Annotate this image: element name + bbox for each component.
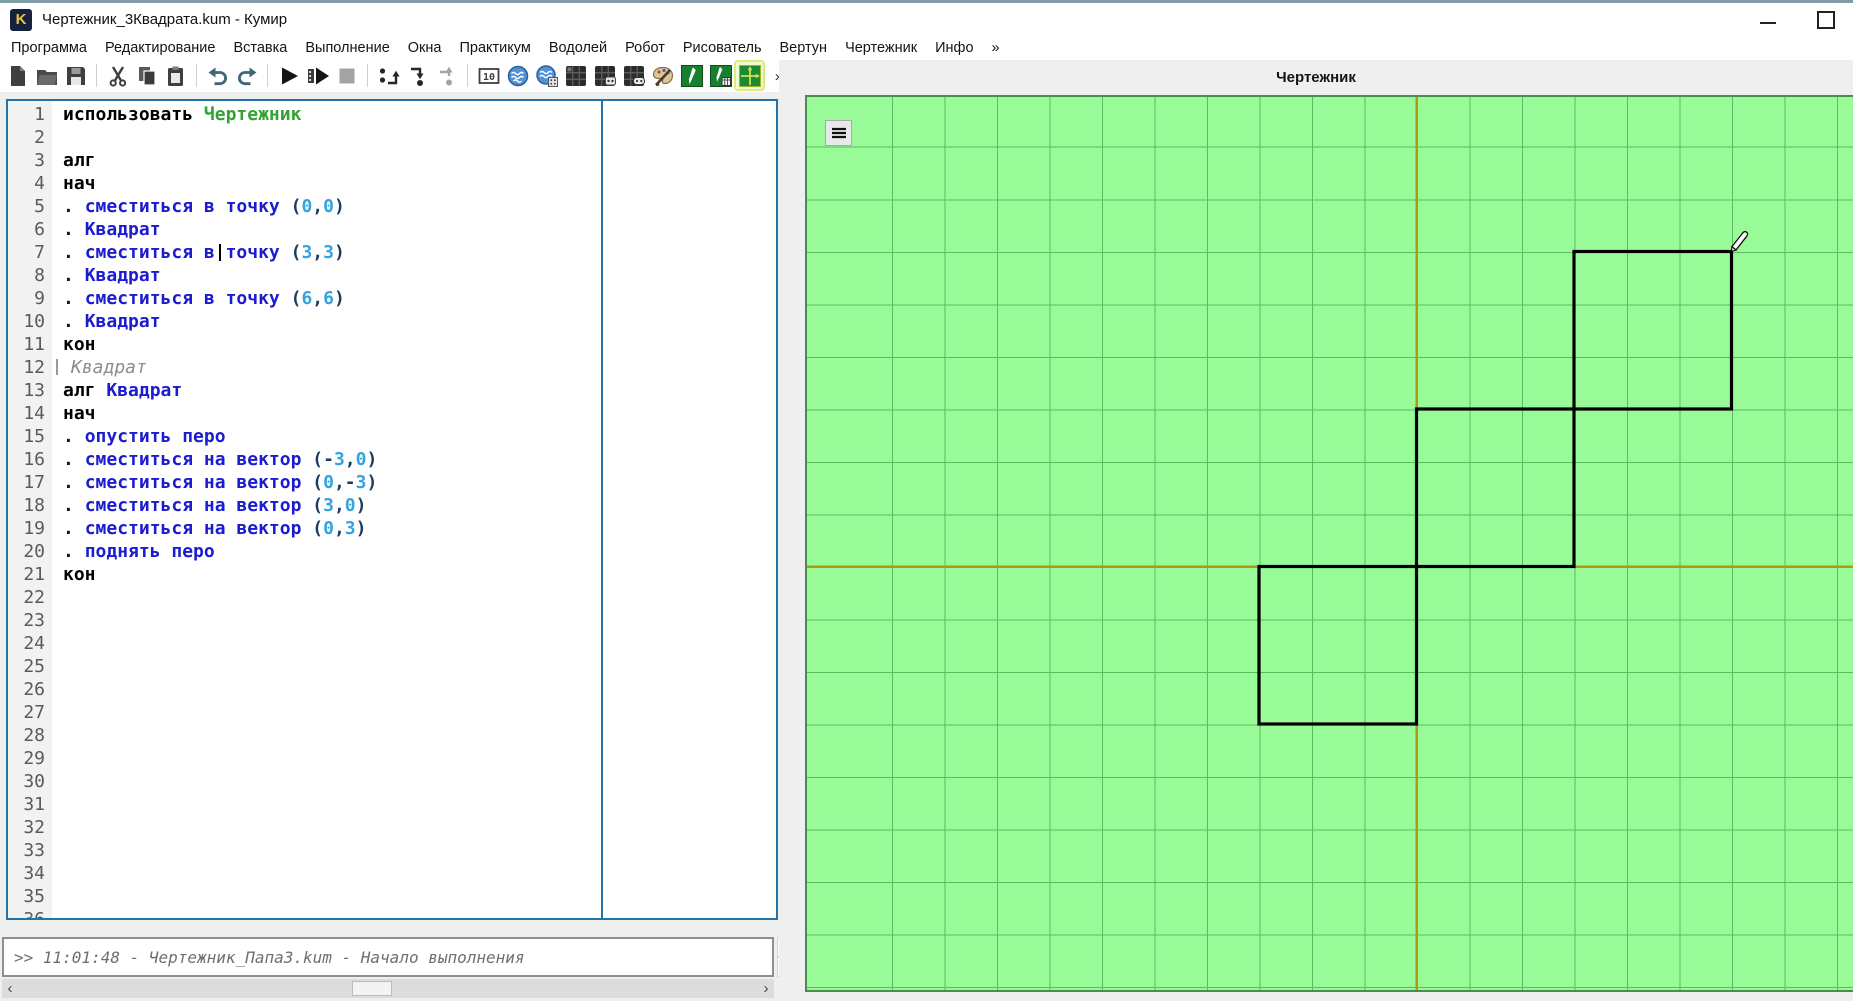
- menu-item-вертун[interactable]: Вертун: [771, 40, 837, 56]
- step-out-icon: [435, 64, 459, 88]
- code-line: нач: [52, 172, 776, 195]
- menu-item--[interactable]: »: [983, 40, 1009, 56]
- code-line: [52, 747, 776, 770]
- robot-pult-button[interactable]: [591, 62, 618, 89]
- line-number: 30: [8, 770, 52, 793]
- line-number: 32: [8, 816, 52, 839]
- toolbar-separator: [367, 64, 368, 87]
- line-number: 11: [8, 333, 52, 356]
- line-number: 29: [8, 747, 52, 770]
- step-over-button[interactable]: [375, 62, 402, 89]
- toolbar-separator: [96, 64, 97, 87]
- undo-button[interactable]: [204, 62, 231, 89]
- stop-icon: [335, 64, 359, 88]
- chertezhnik-icon: [680, 64, 704, 88]
- line-number: 26: [8, 678, 52, 701]
- code-line: . сместиться в точку (3,3): [52, 241, 776, 264]
- code-line: . Квадрат: [52, 310, 776, 333]
- line-number: 35: [8, 885, 52, 908]
- line-number: 4: [8, 172, 52, 195]
- code-line: [52, 885, 776, 908]
- toolbar-separator: [467, 64, 468, 87]
- editor-margin-divider: [601, 101, 603, 918]
- open-file-button[interactable]: [33, 62, 60, 89]
- run-button[interactable]: [275, 62, 302, 89]
- scroll-left-button[interactable]: ‹: [2, 979, 18, 998]
- vodoley-pult-icon: [535, 64, 559, 88]
- risovatel-button[interactable]: [649, 62, 676, 89]
- open-file-icon: [35, 64, 59, 88]
- undo-icon: [206, 64, 230, 88]
- code-line: [52, 126, 776, 149]
- code-line: . сместиться на вектор (0,3): [52, 517, 776, 540]
- ghost-text: Квадрат: [71, 357, 147, 378]
- chertezhnik-pult-button[interactable]: [707, 62, 734, 89]
- redo-icon: [235, 64, 259, 88]
- robot-icon: [564, 64, 588, 88]
- step-into-icon: [406, 64, 430, 88]
- menu-item-выполнение[interactable]: Выполнение: [296, 40, 398, 56]
- line-number: 20: [8, 540, 52, 563]
- chertezhnik-window-button[interactable]: [736, 62, 763, 89]
- menu-item-рисователь[interactable]: Рисователь: [674, 40, 771, 56]
- line-number: 16: [8, 448, 52, 471]
- title-bar: K Чертежник_3Квадрата.kum - Кумир: [0, 0, 1853, 36]
- code-line: кон: [52, 333, 776, 356]
- new-file-icon: [6, 64, 30, 88]
- cut-button[interactable]: [104, 62, 131, 89]
- code-line: [52, 701, 776, 724]
- code-line: использовать Чертежник: [52, 103, 776, 126]
- code-line: алг Квадрат: [52, 379, 776, 402]
- menu-item-водолей[interactable]: Водолей: [540, 40, 616, 56]
- maximize-icon: [1817, 11, 1835, 29]
- line-number: 19: [8, 517, 52, 540]
- chertezhnik-window-icon: [738, 64, 762, 88]
- line-number: 2: [8, 126, 52, 149]
- stop-button[interactable]: [333, 62, 360, 89]
- minimize-button[interactable]: [1753, 3, 1783, 36]
- drawer-menu-button[interactable]: [825, 120, 852, 146]
- code-line: . Квадрат: [52, 264, 776, 287]
- toolbar-separator: [267, 64, 268, 87]
- ghost-line-marker: [56, 359, 58, 375]
- drawer-figures: [807, 97, 1853, 992]
- menu-bar: ПрограммаРедактированиеВставкаВыполнение…: [0, 36, 1853, 59]
- line-number: 33: [8, 839, 52, 862]
- line-number: 8: [8, 264, 52, 287]
- line-number: 13: [8, 379, 52, 402]
- line-number: 25: [8, 655, 52, 678]
- vertun-button[interactable]: [620, 62, 647, 89]
- drawn-square: [1259, 567, 1417, 725]
- save-file-button[interactable]: [62, 62, 89, 89]
- run-detailed-icon: [306, 64, 330, 88]
- text-cursor: [219, 244, 221, 261]
- chertezhnik-button[interactable]: [678, 62, 705, 89]
- code-line: [52, 609, 776, 632]
- paste-button[interactable]: [162, 62, 189, 89]
- drawn-square: [1574, 252, 1732, 410]
- code-line: нач: [52, 402, 776, 425]
- line-number: 15: [8, 425, 52, 448]
- io-window-button[interactable]: 10: [475, 62, 502, 89]
- robot-pult-icon: [593, 64, 617, 88]
- code-line: [52, 816, 776, 839]
- code-editor[interactable]: 1234567891011121314151617181920212223242…: [6, 99, 778, 920]
- minimize-icon: [1760, 22, 1776, 24]
- console-message: >> 11:01:48 - Чертежник_Папа3.kum - Нача…: [14, 948, 525, 967]
- code-line: [52, 908, 776, 920]
- drawer-panel: Чертежник: [779, 60, 1853, 1001]
- io-window-icon: 10: [477, 64, 501, 88]
- line-number: 23: [8, 609, 52, 632]
- pen-cursor-icon: [1729, 231, 1748, 254]
- line-number: 3: [8, 149, 52, 172]
- code-lines: использовать Чертежникалгнач. сместиться…: [52, 101, 776, 918]
- window-title: Чертежник_3Квадрата.kum - Кумир: [42, 11, 287, 28]
- line-number: 5: [8, 195, 52, 218]
- menu-item-программа[interactable]: Программа: [2, 40, 96, 56]
- drawer-panel-title: Чертежник: [779, 60, 1853, 94]
- risovatel-icon: [651, 64, 675, 88]
- new-file-button[interactable]: [4, 62, 31, 89]
- code-line: . сместиться в точку (0,0): [52, 195, 776, 218]
- vodoley-icon: [506, 64, 530, 88]
- scrollbar-thumb[interactable]: [352, 981, 392, 996]
- vodoley-pult-button[interactable]: [533, 62, 560, 89]
- paste-icon: [164, 64, 188, 88]
- code-line: . сместиться в точку (6,6): [52, 287, 776, 310]
- code-line: алг: [52, 149, 776, 172]
- line-number: 22: [8, 586, 52, 609]
- code-line: [52, 655, 776, 678]
- line-number: 34: [8, 862, 52, 885]
- code-line: . сместиться на вектор (-3,0): [52, 448, 776, 471]
- code-line: [52, 839, 776, 862]
- copy-icon: [135, 64, 159, 88]
- line-number: 28: [8, 724, 52, 747]
- line-number: 6: [8, 218, 52, 241]
- drawn-square: [1417, 409, 1575, 567]
- code-line: . поднять перо: [52, 540, 776, 563]
- save-file-icon: [64, 64, 88, 88]
- run-icon: [277, 64, 301, 88]
- horizontal-scrollbar[interactable]: ‹ ›: [2, 979, 774, 998]
- line-number: 24: [8, 632, 52, 655]
- toolbar-separator: [196, 64, 197, 87]
- menu-item-практикум[interactable]: Практикум: [450, 40, 539, 56]
- line-number: 10: [8, 310, 52, 333]
- code-line: [52, 586, 776, 609]
- step-out-button[interactable]: [433, 62, 460, 89]
- menu-item-инфо[interactable]: Инфо: [926, 40, 982, 56]
- code-line: . сместиться на вектор (3,0): [52, 494, 776, 517]
- line-number: 17: [8, 471, 52, 494]
- code-line: [52, 862, 776, 885]
- code-line: . Квадрат: [52, 218, 776, 241]
- svg-text:10: 10: [482, 71, 494, 82]
- line-number-gutter: 1234567891011121314151617181920212223242…: [8, 101, 52, 918]
- code-line: . опустить перо: [52, 425, 776, 448]
- copy-button[interactable]: [133, 62, 160, 89]
- line-number: 7: [8, 241, 52, 264]
- code-line: [52, 632, 776, 655]
- menu-item-редактирование[interactable]: Редактирование: [96, 40, 224, 56]
- menu-item-вставка[interactable]: Вставка: [224, 40, 296, 56]
- step-into-button[interactable]: [404, 62, 431, 89]
- code-line: [52, 793, 776, 816]
- app-logo-icon: K: [10, 9, 32, 31]
- line-number: 18: [8, 494, 52, 517]
- line-number: 9: [8, 287, 52, 310]
- drawer-canvas: [805, 95, 1853, 992]
- line-number: 27: [8, 701, 52, 724]
- code-line: [52, 678, 776, 701]
- line-number: 1: [8, 103, 52, 126]
- code-line: [52, 724, 776, 747]
- hamburger-icon: [831, 127, 847, 139]
- step-over-icon: [377, 64, 401, 88]
- redo-button[interactable]: [233, 62, 260, 89]
- cut-icon: [106, 64, 130, 88]
- line-number: 14: [8, 402, 52, 425]
- code-line: кон: [52, 563, 776, 586]
- line-number: 36: [8, 908, 52, 920]
- console-output[interactable]: >> 11:01:48 - Чертежник_Папа3.kum - Нача…: [2, 937, 774, 977]
- chertezhnik-pult-icon: [709, 64, 733, 88]
- code-line: Квадрат: [52, 356, 776, 379]
- maximize-button[interactable]: [1811, 3, 1841, 36]
- menu-item-чертежник[interactable]: Чертежник: [836, 40, 926, 56]
- scroll-right-button[interactable]: ›: [758, 979, 774, 998]
- run-detailed-button[interactable]: [304, 62, 331, 89]
- menu-item-робот[interactable]: Робот: [616, 40, 674, 56]
- code-line: . сместиться на вектор (0,-3): [52, 471, 776, 494]
- line-number: 12: [8, 356, 52, 379]
- line-number: 21: [8, 563, 52, 586]
- vertun-icon: [622, 64, 646, 88]
- vodoley-button[interactable]: [504, 62, 531, 89]
- menu-item-окна[interactable]: Окна: [399, 40, 451, 56]
- line-number: 31: [8, 793, 52, 816]
- code-line: [52, 770, 776, 793]
- robot-button[interactable]: [562, 62, 589, 89]
